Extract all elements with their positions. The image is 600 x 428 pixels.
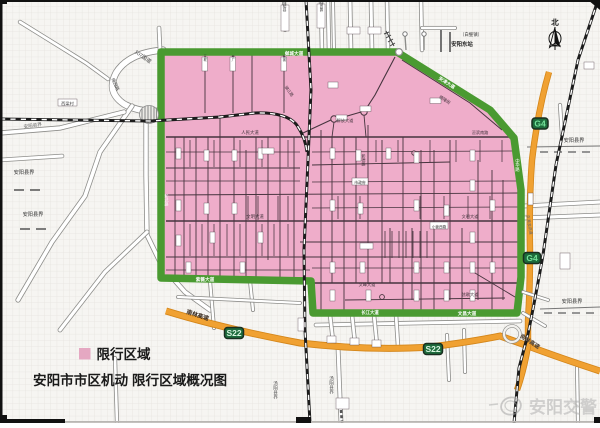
svg-text:长江大道: 长江大道 — [361, 309, 379, 316]
svg-text:安阳交警: 安阳交警 — [529, 397, 597, 417]
svg-text:三联: 三联 — [202, 55, 206, 62]
svg-text:G4: G4 — [534, 119, 546, 129]
svg-text:S22: S22 — [425, 344, 440, 354]
svg-text:市政府: 市政府 — [354, 180, 366, 185]
svg-text:北: 北 — [551, 17, 559, 27]
svg-text:安阳市市区机动 限行区域概况图: 安阳市市区机动 限行区域概况图 — [33, 372, 227, 388]
svg-text:汤阴县界: 汤阴县界 — [329, 375, 335, 396]
svg-text:彰德路: 彰德路 — [362, 153, 367, 167]
svg-text:小营西路: 小营西路 — [432, 224, 447, 229]
svg-text:文昌大道: 文昌大道 — [458, 310, 477, 317]
svg-text:弦歌大道: 弦歌大道 — [462, 291, 480, 298]
svg-text:文明大道: 文明大道 — [246, 213, 264, 220]
svg-text:限行区域: 限行区域 — [97, 346, 151, 362]
svg-text:安阳县界: 安阳县界 — [562, 297, 583, 305]
svg-text:彰武路: 彰武路 — [165, 193, 170, 207]
svg-text:洹滨南路: 洹滨南路 — [472, 129, 490, 136]
svg-text:汤阴县界: 汤阴县界 — [273, 380, 279, 401]
svg-text:纱厂: 纱厂 — [230, 55, 234, 62]
svg-text:紫薇大道: 紫薇大道 — [196, 276, 215, 283]
svg-text:人民大道: 人民大道 — [241, 129, 259, 136]
svg-text:文明大道: 文明大道 — [462, 213, 480, 220]
svg-text:〔白璧镇〕: 〔白璧镇〕 — [460, 31, 482, 38]
svg-text:安阳县界: 安阳县界 — [564, 136, 585, 144]
svg-text:安阳县界: 安阳县界 — [14, 168, 35, 176]
svg-text:中华路: 中华路 — [515, 157, 521, 173]
svg-text:西梁村: 西梁村 — [61, 100, 74, 107]
svg-text:S22: S22 — [226, 328, 241, 338]
svg-text:安阳东站: 安阳东站 — [451, 40, 473, 48]
svg-text:邺城大道: 邺城大道 — [285, 50, 304, 57]
svg-text:解放大道: 解放大道 — [337, 117, 355, 124]
svg-text:G4: G4 — [526, 253, 538, 263]
svg-text:安阳县界: 安阳县界 — [23, 210, 44, 218]
svg-text:文峰大道: 文峰大道 — [359, 281, 377, 288]
